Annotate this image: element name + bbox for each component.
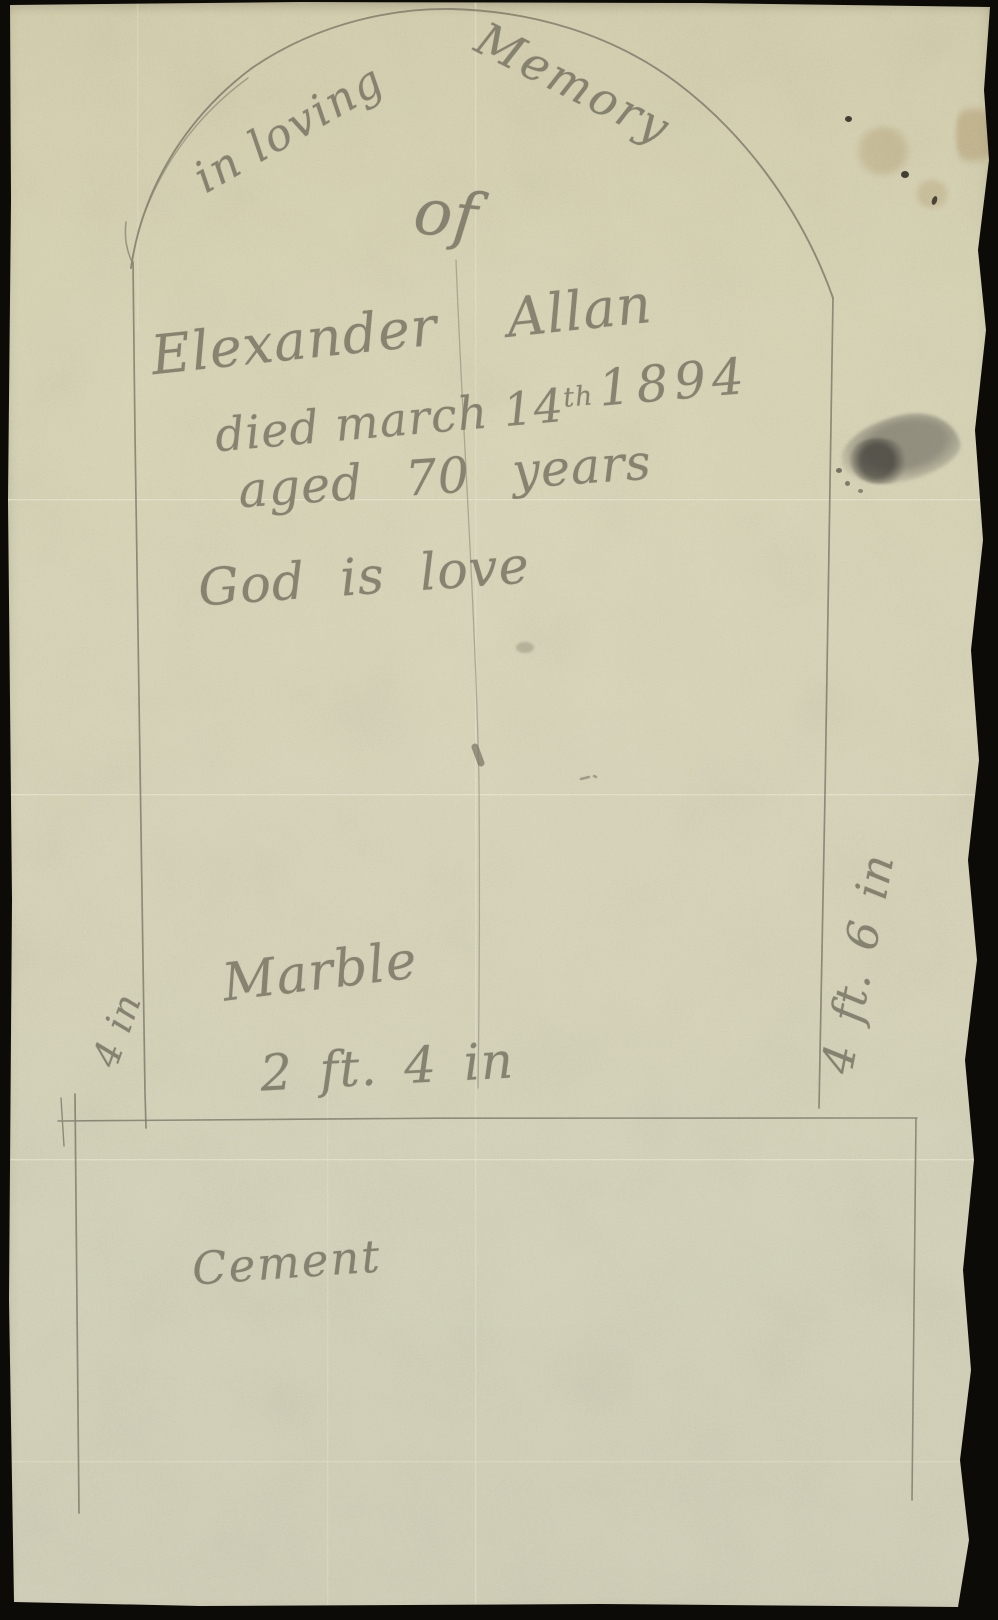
inscription-of: of — [410, 175, 482, 255]
small-dash-mark — [581, 777, 589, 779]
headstone-sketch-svg — [0, 0, 998, 1620]
dark-fleck-1 — [845, 116, 852, 122]
center-line-smudge-mark — [475, 747, 481, 763]
ink-speck-2 — [845, 481, 850, 486]
photo-background: in loving Memory of Elexander Allan died… — [0, 0, 998, 1620]
died-line-year: 1894 — [596, 347, 752, 418]
pencil-marks — [475, 747, 596, 779]
base-outline — [58, 1094, 917, 1513]
ink-speck-3 — [858, 489, 863, 493]
paper-sheet: in loving Memory of Elexander Allan died… — [0, 0, 998, 1620]
base-left-side-line — [75, 1094, 79, 1513]
base-top-line — [58, 1118, 917, 1121]
base-right-side-line — [912, 1118, 916, 1500]
died-line-superscript: th — [562, 380, 595, 414]
small-dot-mark — [594, 776, 596, 777]
ink-speck-1 — [836, 468, 842, 473]
base-left-tick — [61, 1098, 64, 1146]
dark-fleck-2 — [901, 171, 909, 178]
